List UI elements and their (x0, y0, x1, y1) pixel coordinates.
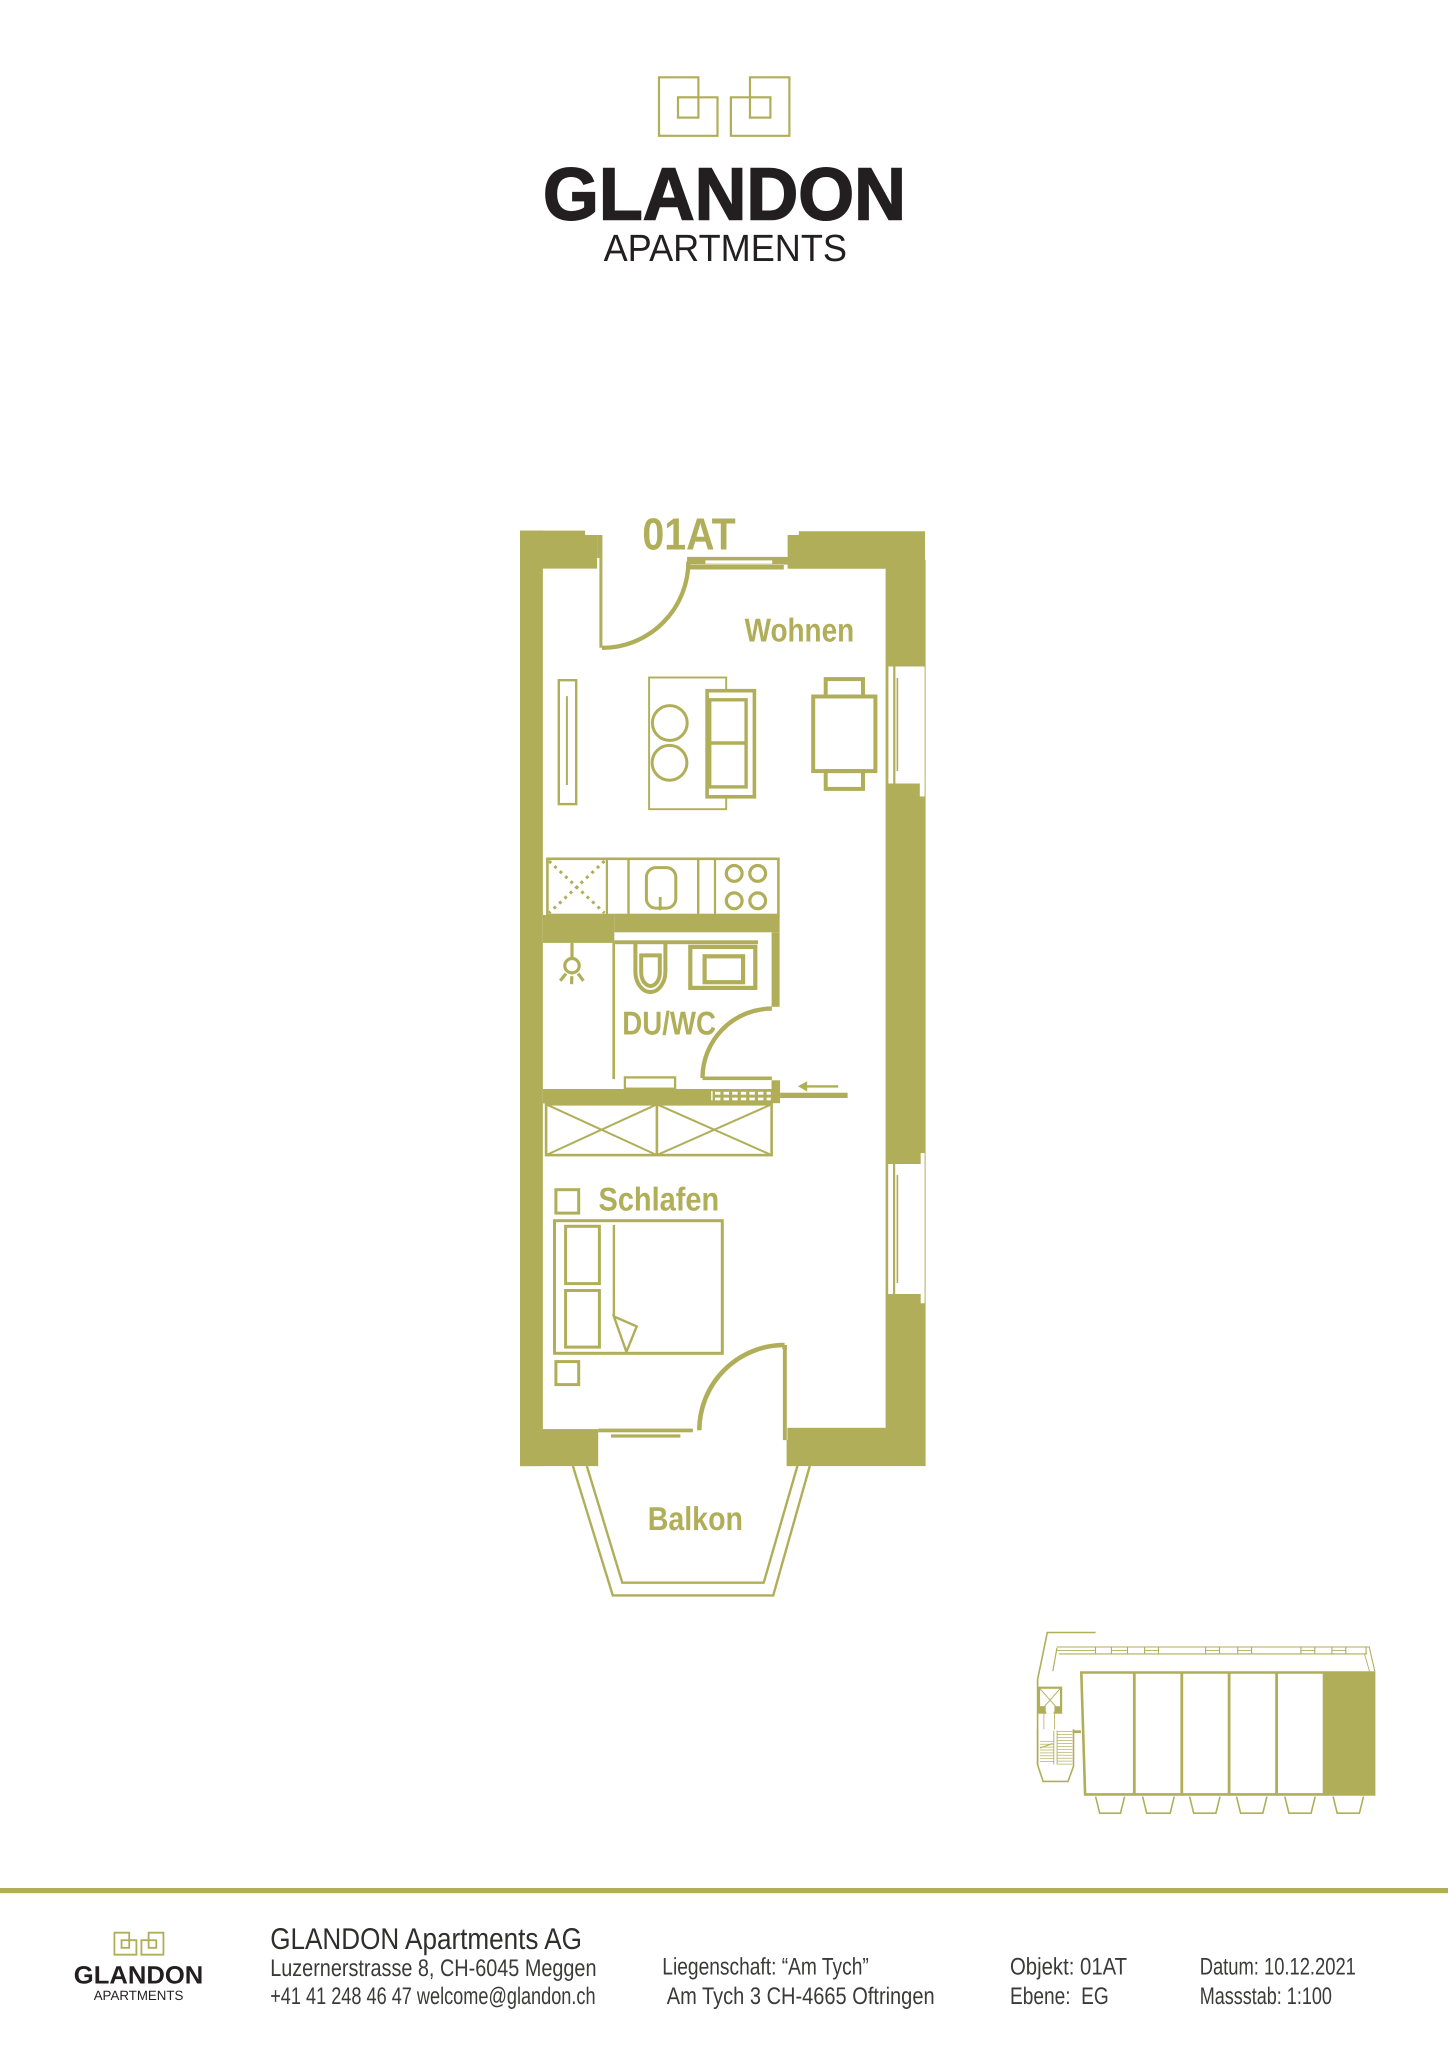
svg-text:Ebene: EG: Ebene: EG (1010, 1983, 1109, 2010)
svg-text:Datum: 10.12.2021: Datum: 10.12.2021 (1200, 1954, 1356, 1981)
svg-text:Objekt: 01AT: Objekt: 01AT (1010, 1954, 1127, 1981)
svg-text:Massstab: 1:100: Massstab: 1:100 (1200, 1983, 1332, 2010)
svg-text:01AT: 01AT (642, 509, 735, 560)
svg-text:Wohnen: Wohnen (745, 612, 855, 649)
svg-text:Schlafen: Schlafen (599, 1181, 720, 1218)
svg-text:+41 41 248 46 47 welcome@gland: +41 41 248 46 47 welcome@glandon.ch (270, 1983, 595, 2010)
svg-text:GLANDON: GLANDON (543, 153, 906, 236)
svg-text:Liegenschaft: “Am Tych”: Liegenschaft: “Am Tych” (662, 1954, 869, 1981)
svg-text:Luzernerstrasse 8, CH-6045 Meg: Luzernerstrasse 8, CH-6045 Meggen (270, 1955, 596, 1982)
svg-text:Am Tych 3 CH-4665 Oftringen: Am Tych 3 CH-4665 Oftringen (667, 1983, 935, 2010)
svg-text:DU/WC: DU/WC (622, 1005, 716, 1042)
svg-text:GLANDON Apartments AG: GLANDON Apartments AG (270, 1923, 582, 1956)
svg-text:APARTMENTS: APARTMENTS (604, 228, 847, 270)
svg-text:GLANDON: GLANDON (74, 1961, 204, 1989)
svg-text:Balkon: Balkon (648, 1500, 743, 1537)
svg-text:APARTMENTS: APARTMENTS (94, 1988, 184, 2003)
